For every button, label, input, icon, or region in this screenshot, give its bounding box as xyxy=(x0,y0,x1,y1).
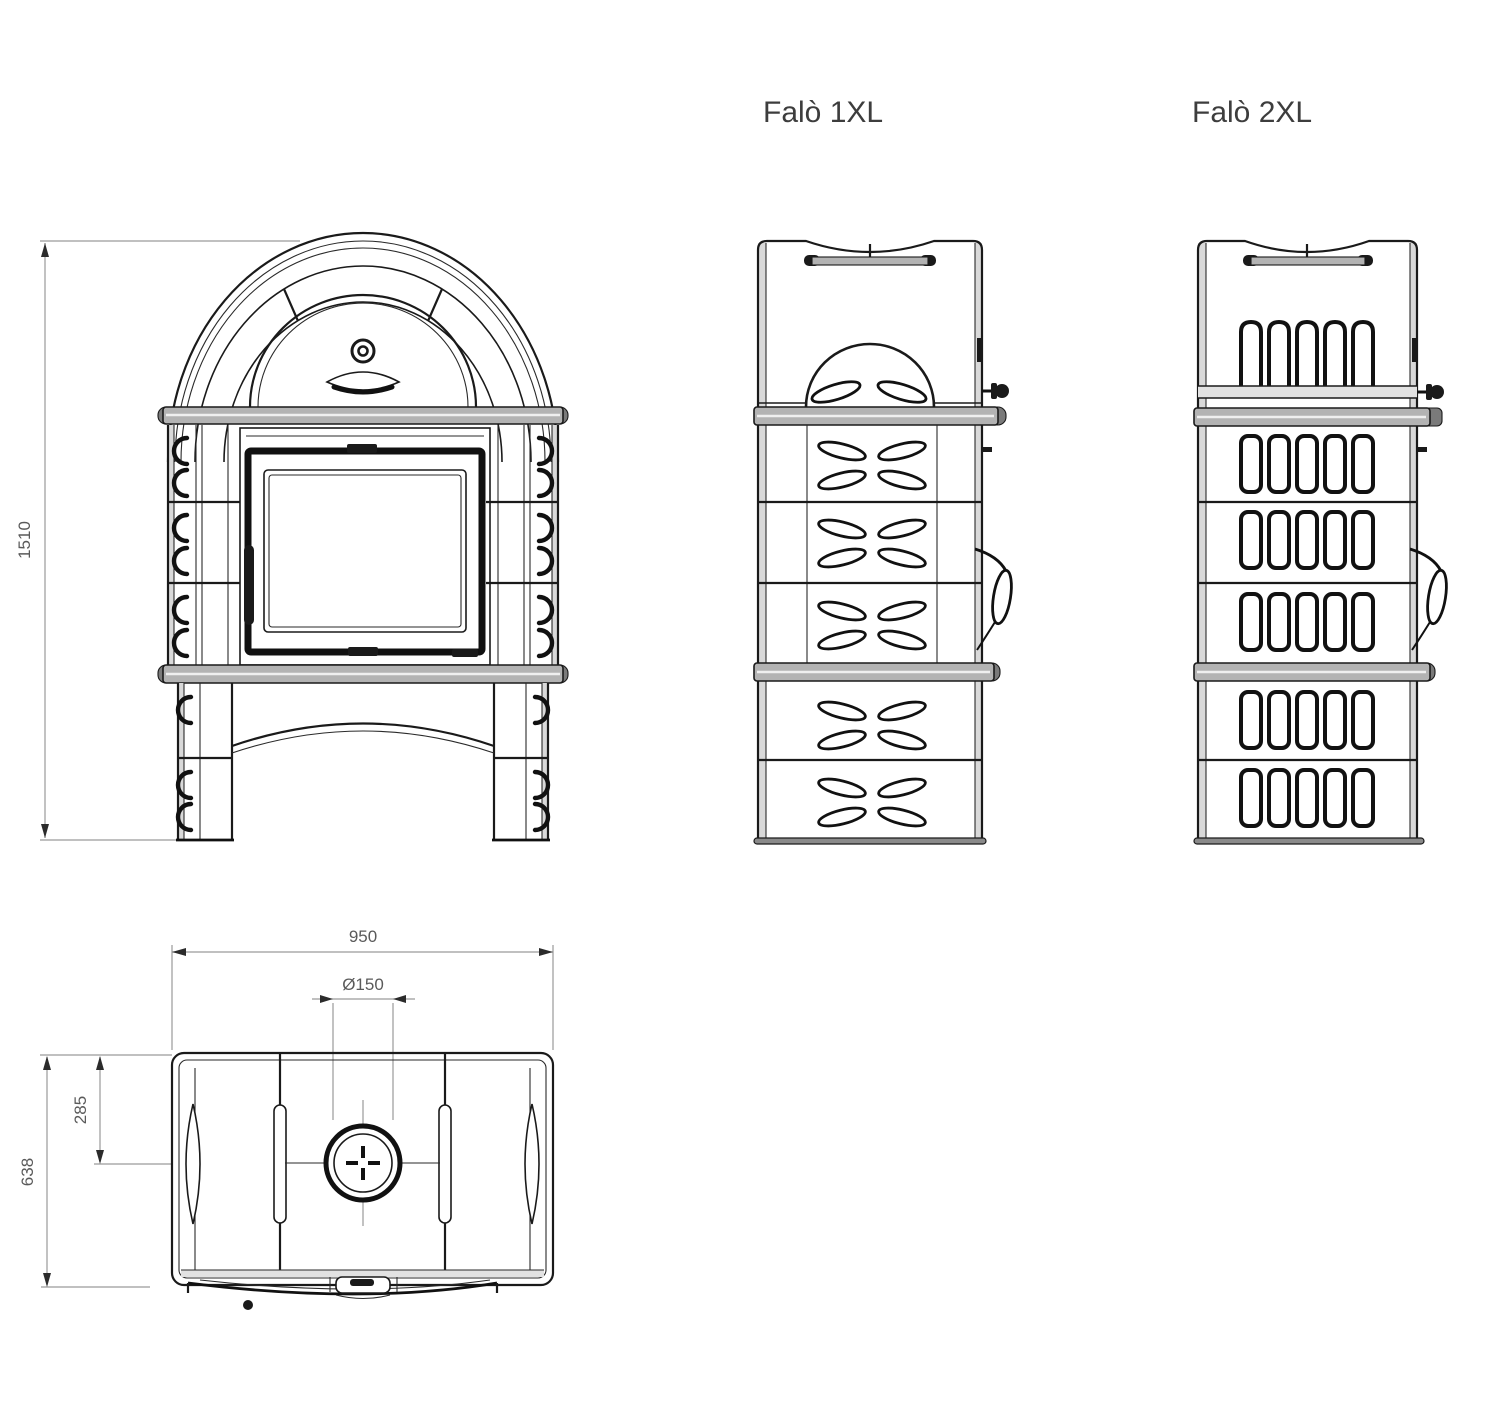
upper-vents-2xl xyxy=(1241,322,1373,386)
side-tile-right xyxy=(525,1104,539,1224)
flue-dimension-text: Ø150 xyxy=(342,975,384,994)
tile-motifs-right xyxy=(539,438,552,656)
leg-tile-motifs xyxy=(178,697,548,830)
plan-front-edge xyxy=(188,1277,497,1310)
model-label-1xl: Falò 1XL xyxy=(763,96,883,129)
upper-shelf-1xl xyxy=(754,407,1006,425)
door-top-latch xyxy=(347,444,377,453)
flue-collar xyxy=(285,1100,440,1226)
hinge-lower-1xl xyxy=(982,447,992,452)
upper-shelf-2xl xyxy=(1194,408,1442,426)
lid-handle-2xl xyxy=(1243,255,1373,266)
lower-shelf-2xl xyxy=(1194,663,1435,681)
flue-offset-text: 285 xyxy=(71,1096,90,1124)
fire-door xyxy=(240,428,490,665)
top-view: 950 Ø150 285 638 xyxy=(18,927,553,1310)
depth-dimension-text: 638 xyxy=(18,1158,37,1186)
flue-dimension: Ø150 xyxy=(312,975,415,1120)
base-1xl xyxy=(754,838,986,844)
side-view-falo-1xl xyxy=(754,241,1015,844)
tile-motifs-left xyxy=(174,438,187,656)
model-label-2xl: Falò 2XL xyxy=(1192,96,1312,129)
divider-pill-right xyxy=(439,1105,451,1223)
technical-drawing: Falò 1XL Falò 2XL 1510 xyxy=(0,0,1500,1427)
lid-handle-1xl xyxy=(804,255,936,266)
body-outline-1xl xyxy=(758,241,982,843)
drawing-sheet: Falò 1XL Falò 2XL 1510 xyxy=(0,0,1500,1427)
height-dimension-text: 1510 xyxy=(15,521,34,559)
front-legs xyxy=(176,683,550,840)
base-2xl xyxy=(1194,838,1424,844)
hinge-upper-2xl xyxy=(1412,338,1418,362)
front-view: 1510 xyxy=(15,233,568,840)
damper-knob-1xl xyxy=(982,383,1009,399)
door-handle xyxy=(244,545,254,625)
damper-knob-2xl xyxy=(1417,384,1444,400)
hinge-upper-1xl xyxy=(977,338,983,362)
door-frame xyxy=(248,451,482,652)
depth-dimensions: 285 638 xyxy=(18,1055,172,1287)
leg-apron-arch xyxy=(232,724,494,747)
lower-shelf-1xl xyxy=(754,663,1000,681)
side-tile-left xyxy=(186,1104,200,1224)
divider-pill-left xyxy=(274,1105,286,1223)
width-dimension-text: 950 xyxy=(349,927,377,946)
side-view-falo-2xl xyxy=(1194,241,1450,844)
side-arch-1xl xyxy=(806,344,934,407)
plan-foot-dot xyxy=(243,1300,253,1310)
hinge-lower-2xl xyxy=(1417,447,1427,452)
